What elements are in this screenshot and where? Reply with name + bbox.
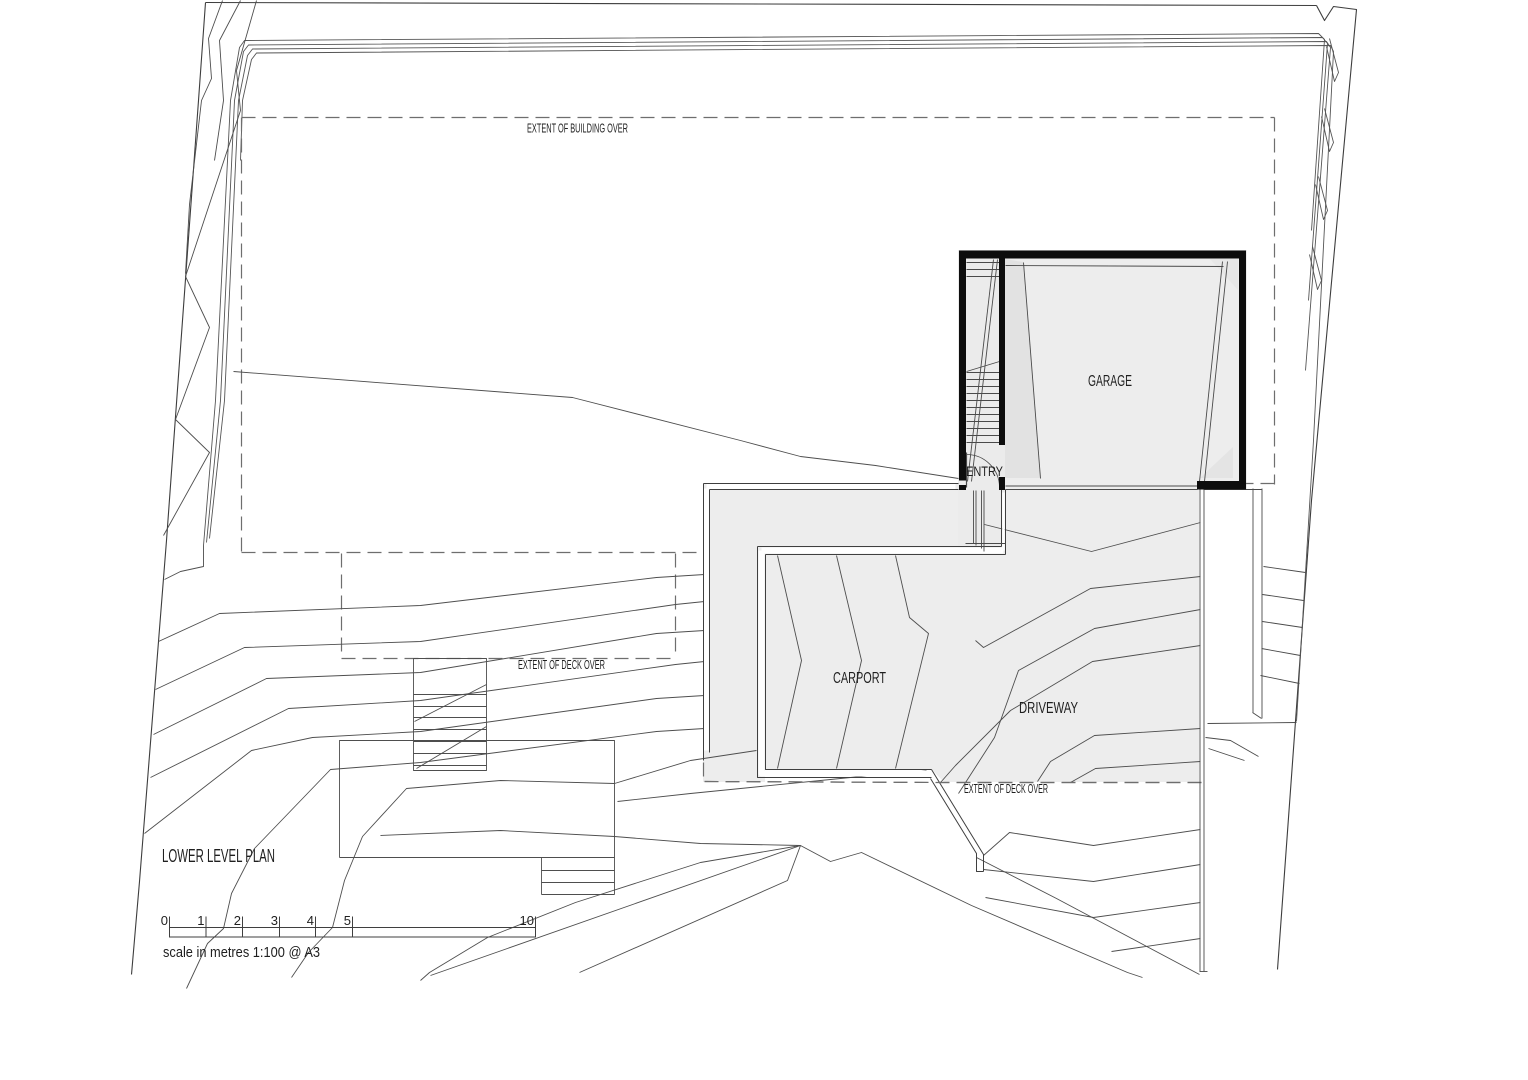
svg-text:GARAGE: GARAGE xyxy=(1088,373,1132,390)
svg-text:4: 4 xyxy=(307,913,314,928)
svg-text:1: 1 xyxy=(197,913,204,928)
svg-text:3: 3 xyxy=(271,913,278,928)
svg-text:LOWER LEVEL PLAN: LOWER LEVEL PLAN xyxy=(162,845,275,866)
svg-text:EXTENT OF BUILDING OVER: EXTENT OF BUILDING OVER xyxy=(527,122,628,136)
svg-text:EXTENT OF DECK OVER: EXTENT OF DECK OVER xyxy=(518,658,605,672)
svg-text:10: 10 xyxy=(520,913,534,928)
svg-text:0: 0 xyxy=(161,913,168,928)
svg-text:DRIVEWAY: DRIVEWAY xyxy=(1019,700,1078,717)
svg-text:CARPORT: CARPORT xyxy=(833,670,886,687)
svg-text:scale in metres 1:100 @ A3: scale in metres 1:100 @ A3 xyxy=(163,944,320,961)
svg-text:ENTRY: ENTRY xyxy=(966,463,1004,479)
svg-text:5: 5 xyxy=(344,913,351,928)
svg-text:EXTENT OF DECK OVER: EXTENT OF DECK OVER xyxy=(964,782,1048,796)
svg-text:2: 2 xyxy=(234,913,241,928)
